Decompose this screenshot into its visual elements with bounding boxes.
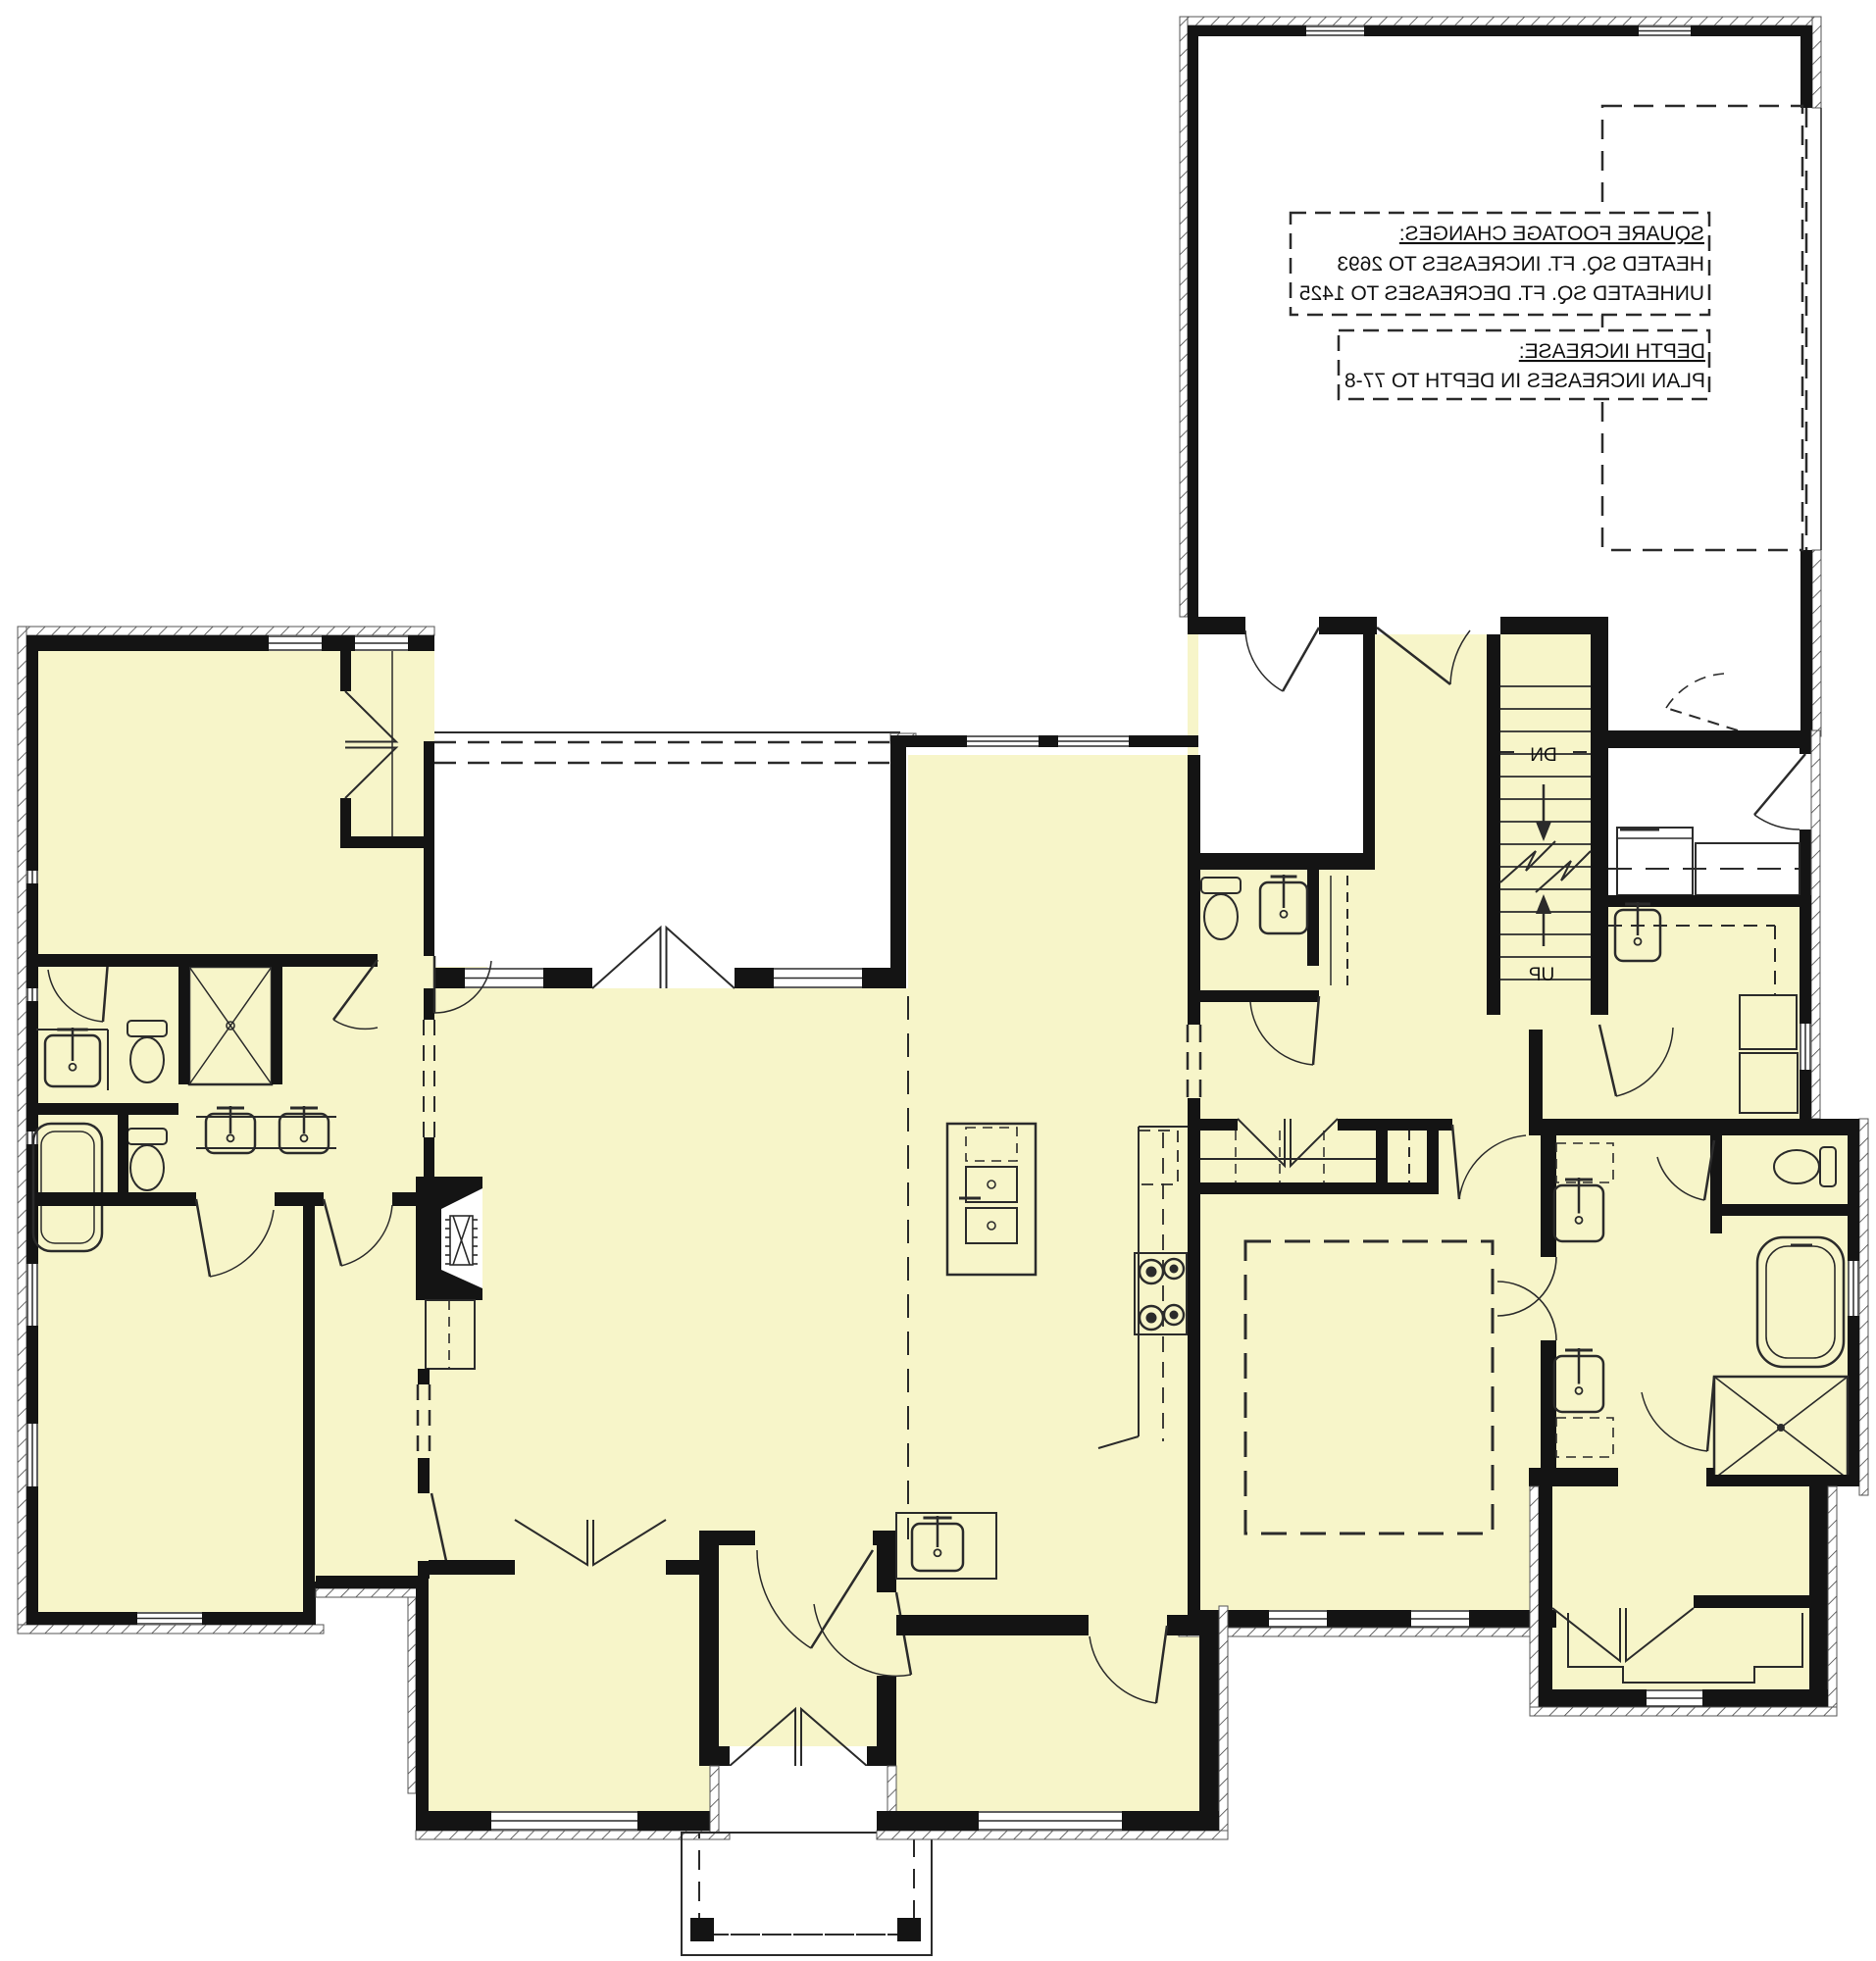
svg-text:PLAN INCREASES IN DEPTH TO 77-: PLAN INCREASES IN DEPTH TO 77-8 xyxy=(1344,370,1705,392)
svg-text:HEATED SQ. FT. INCREASES TO 26: HEATED SQ. FT. INCREASES TO 2693 xyxy=(1337,253,1704,276)
svg-text:DEPTH INCREASE:: DEPTH INCREASE: xyxy=(1519,340,1705,363)
svg-text:SQUARE FOOTAGE CHANGES:: SQUARE FOOTAGE CHANGES: xyxy=(1399,223,1704,245)
svg-text:UNHEATED SQ. FT. DECREASES TO: UNHEATED SQ. FT. DECREASES TO 1425 xyxy=(1299,282,1704,305)
svg-text:UP: UP xyxy=(1529,965,1554,985)
svg-text:DN: DN xyxy=(1530,745,1556,766)
